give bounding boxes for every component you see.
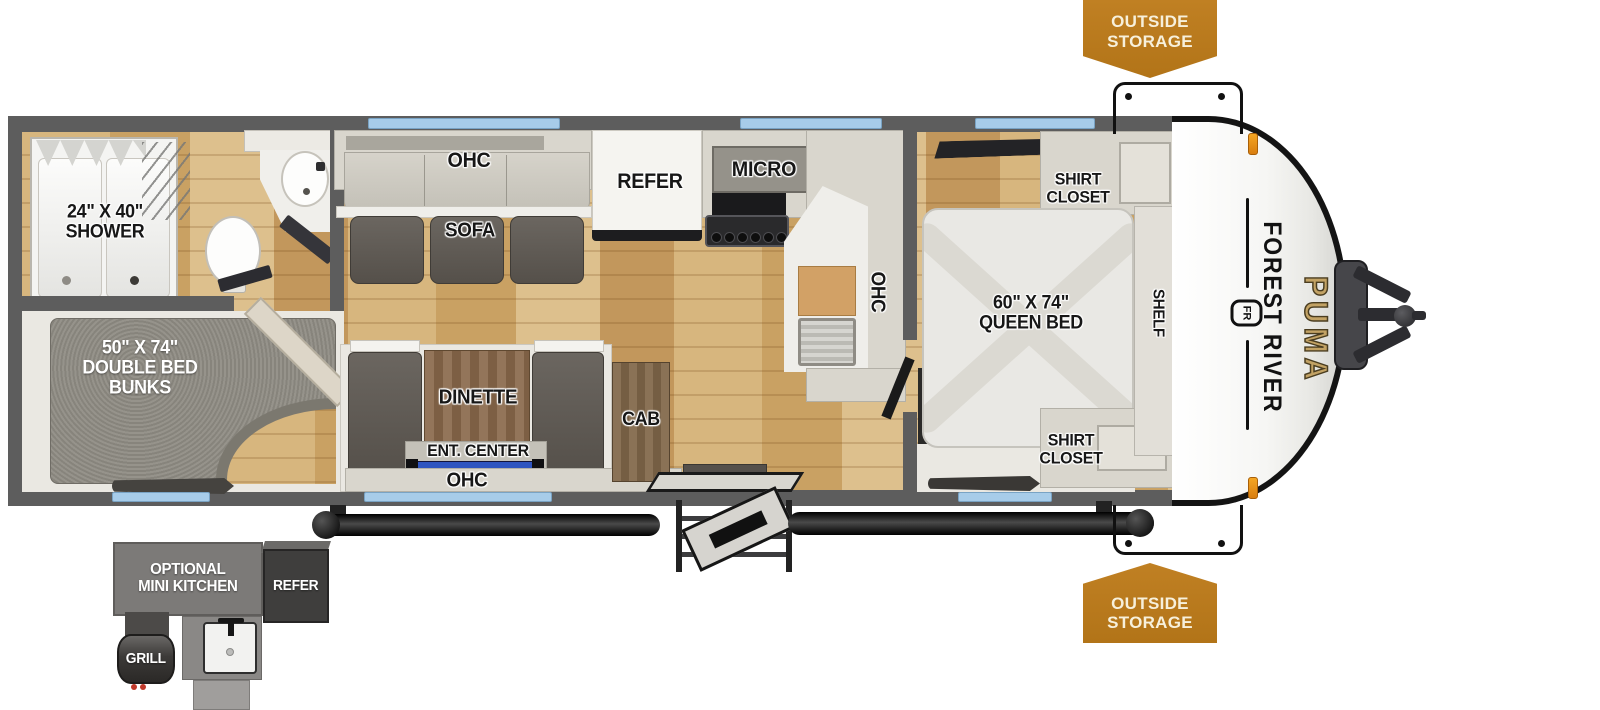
storage-bolt-top-right — [1218, 93, 1225, 100]
bathroom-sink-drain — [303, 188, 310, 195]
bathroom-faucet-icon — [316, 162, 325, 171]
forest-river-wordmark: FOREST RIVER — [1257, 192, 1287, 442]
bathroom-sink-fixture — [281, 151, 329, 207]
shower-drain-right — [130, 276, 139, 285]
brand-swoosh-top — [1246, 198, 1249, 288]
outside-storage-badge-top-label: OUTSIDE STORAGE — [1107, 12, 1193, 51]
sofa-seat-1 — [350, 216, 424, 284]
mini-refer-label: REFER — [273, 578, 318, 594]
entry-step-tread — [709, 510, 768, 548]
wall-bedroom-lower — [903, 412, 917, 492]
sofa-seat-3 — [510, 216, 584, 284]
entry-door-panel — [646, 472, 804, 492]
forest-river-logo-monogram: FR — [1241, 306, 1253, 321]
marker-light-bottom — [1248, 477, 1258, 499]
shelf-label: SHELF — [1149, 289, 1166, 337]
window-bottom-2 — [364, 492, 552, 502]
cooktop-knob-3 — [737, 232, 748, 243]
ohc-top-label: OHC — [447, 150, 490, 172]
grill-knob-1 — [131, 684, 137, 690]
grill-label: GRILL — [126, 651, 166, 667]
outside-storage-badge-top: OUTSIDE STORAGE — [1083, 0, 1217, 78]
cooktop-knob-4 — [750, 232, 761, 243]
wall-bedroom-upper — [903, 130, 917, 340]
ohc-kitchen-label: OHC — [867, 272, 888, 313]
range-hood — [712, 193, 786, 215]
queen-bed-label: 60" X 74" QUEEN BED — [979, 293, 1083, 333]
mini-kitchen-lower-tab — [193, 680, 250, 710]
marker-light-top — [1248, 133, 1258, 155]
window-top-3 — [975, 118, 1095, 129]
ent-center-label: ENT. CENTER — [427, 442, 529, 460]
sofa-back-seam-2 — [506, 155, 507, 210]
window-top-1 — [368, 118, 560, 129]
cooktop-knob-1 — [711, 232, 722, 243]
storage-outline-top — [1113, 82, 1243, 134]
sofa-label: SOFA — [445, 221, 495, 242]
storage-outline-bottom — [1113, 505, 1243, 555]
hitch-coupler-tip — [1412, 311, 1426, 320]
mini-kitchen-faucet-stem — [228, 620, 234, 636]
mini-kitchen-drain — [226, 648, 234, 656]
micro-label: MICRO — [732, 159, 796, 181]
cooktop-knob-2 — [724, 232, 735, 243]
mini-kitchen-label: OPTIONAL MINI KITCHEN — [138, 562, 237, 595]
cutting-board — [798, 266, 856, 316]
kitchen-sink — [798, 318, 856, 366]
shower-door-glass — [142, 142, 190, 220]
outside-storage-badge-bottom-label: OUTSIDE STORAGE — [1107, 594, 1193, 633]
puma-wordmark: PUMA — [1296, 245, 1336, 415]
refrigerator-base-strip — [592, 230, 702, 241]
window-bottom-1 — [112, 492, 210, 502]
grill-knob-2 — [140, 684, 146, 690]
storage-bolt-top-left — [1125, 93, 1132, 100]
puma-text: PUMA — [1298, 276, 1335, 385]
awning-bar-right — [788, 512, 1154, 535]
sofa-ohc-top-strip — [346, 136, 544, 150]
awning-bar-left — [318, 514, 660, 536]
forest-river-text: FOREST RIVER — [1258, 221, 1287, 413]
bed-bolster — [928, 476, 1040, 491]
cooktop-knob-5 — [763, 232, 774, 243]
window-bottom-3 — [958, 492, 1052, 502]
dinette-headrest-left — [350, 340, 420, 352]
awning-cap-left — [312, 511, 340, 539]
shower-drain-left — [62, 276, 71, 285]
grill-unit: GRILL — [117, 634, 175, 684]
outside-storage-badge-bottom: OUTSIDE STORAGE — [1083, 563, 1217, 643]
storage-bolt-bottom-right — [1218, 540, 1225, 547]
cab-label: CAB — [622, 410, 660, 430]
mini-refer-box: REFER — [263, 549, 329, 623]
wall-bathroom-bottom — [22, 296, 234, 311]
storage-bolt-bottom-left — [1125, 540, 1132, 547]
bathroom-counter-strip — [244, 130, 340, 152]
window-top-2 — [740, 118, 882, 129]
shower-label: 24" X 40" SHOWER — [66, 202, 145, 242]
shirt-closet-bottom-label: SHIRT CLOSET — [1039, 431, 1102, 466]
wall-left — [8, 116, 22, 506]
ohc-bottom-label: OHC — [447, 471, 488, 492]
refer-label: REFER — [617, 171, 683, 193]
sofa-back-seam-1 — [424, 155, 425, 210]
brand-swoosh-bottom — [1246, 340, 1249, 430]
floorplan-canvas: 24" X 40" SHOWER 50" X 74" DOUBLE BED BU… — [0, 0, 1600, 710]
dinette-headrest-right — [534, 340, 604, 352]
dinette-label: DINETTE — [439, 388, 517, 409]
shirt-closet-top-door — [1119, 142, 1171, 204]
bunks-label: 50" X 74" DOUBLE BED BUNKS — [82, 338, 197, 397]
mini-kitchen-box: OPTIONAL MINI KITCHEN — [113, 542, 263, 616]
shirt-closet-top-label: SHIRT CLOSET — [1046, 170, 1109, 205]
